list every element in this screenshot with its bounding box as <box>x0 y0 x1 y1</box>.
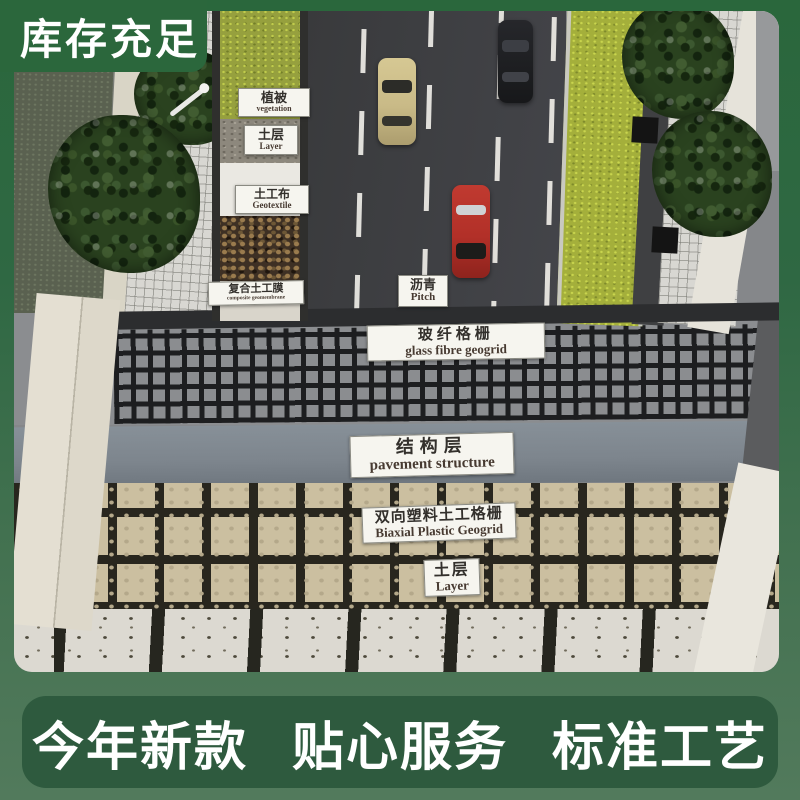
label-vegetation-zh: 植被 <box>261 91 287 105</box>
car-black <box>498 20 533 103</box>
car-rear-window <box>502 72 529 82</box>
label-geomembrane-en: composite geomembrane <box>227 295 285 302</box>
label-glass-geogrid: 玻纤格栅 glass fibre geogrid <box>367 322 546 361</box>
lane-marking <box>544 11 557 325</box>
car-windshield <box>502 40 529 52</box>
car-windshield <box>456 205 486 215</box>
label-geotextile: 土工布 Geotextile <box>235 185 309 214</box>
car-sunroof <box>456 243 486 259</box>
label-pitch: 沥青 Pitch <box>398 275 448 307</box>
road <box>306 11 566 317</box>
car-red <box>452 185 490 278</box>
stock-badge-label: 库存充足 <box>0 6 200 67</box>
label-pitch-zh: 沥青 <box>410 278 436 292</box>
label-soil-top: 土层 Layer <box>244 125 298 155</box>
biaxial-geogrid-band <box>14 483 779 611</box>
label-soil-bottom: 土层 Layer <box>423 558 480 597</box>
lane-marking <box>354 11 367 325</box>
base-soil-band <box>14 609 779 672</box>
label-geotextile-en: Geotextile <box>253 201 292 211</box>
car-rear-window <box>382 116 412 126</box>
banner-phrase: 贴心服务 <box>292 705 508 780</box>
label-vegetation: 植被 vegetation <box>238 88 310 117</box>
label-geotextile-zh: 土工布 <box>254 188 290 201</box>
label-pavement-structure-zh: 结构层 <box>396 436 468 457</box>
car-windshield <box>382 80 412 93</box>
label-pitch-en: Pitch <box>411 292 435 304</box>
model-photo: 植被 vegetation 土层 Layer 土工布 Geotextile 复合… <box>14 11 779 672</box>
label-pavement-structure: 结构层 pavement structure <box>349 432 514 478</box>
banner-phrase: 今年新款 <box>32 705 248 780</box>
tree-planter <box>631 116 658 143</box>
label-biaxial-geogrid-en: Biaxial Plastic Geogrid <box>375 522 503 540</box>
stock-badge: 库存充足 <box>0 0 207 72</box>
banner-phrase: 标准工艺 <box>552 705 768 780</box>
promo-product-image: 植被 vegetation 土层 Layer 土工布 Geotextile 复合… <box>0 0 800 800</box>
bottom-banner: 今年新款 贴心服务 标准工艺 <box>22 696 778 788</box>
label-glass-geogrid-en: glass fibre geogrid <box>405 342 507 358</box>
label-geomembrane: 复合土工膜 composite geomembrane <box>208 280 304 305</box>
label-soil-bottom-en: Layer <box>435 579 469 594</box>
label-biaxial-geogrid: 双向塑料土工格栅 Biaxial Plastic Geogrid <box>361 502 516 544</box>
soil-layer-column <box>212 11 308 321</box>
label-pavement-structure-en: pavement structure <box>370 455 496 474</box>
tree-planter <box>651 226 678 253</box>
label-soil-top-zh: 土层 <box>258 128 284 142</box>
car-yellow <box>378 58 416 145</box>
label-vegetation-en: vegetation <box>256 105 291 114</box>
label-soil-top-en: Layer <box>260 142 283 152</box>
gravel-layer <box>220 216 300 281</box>
